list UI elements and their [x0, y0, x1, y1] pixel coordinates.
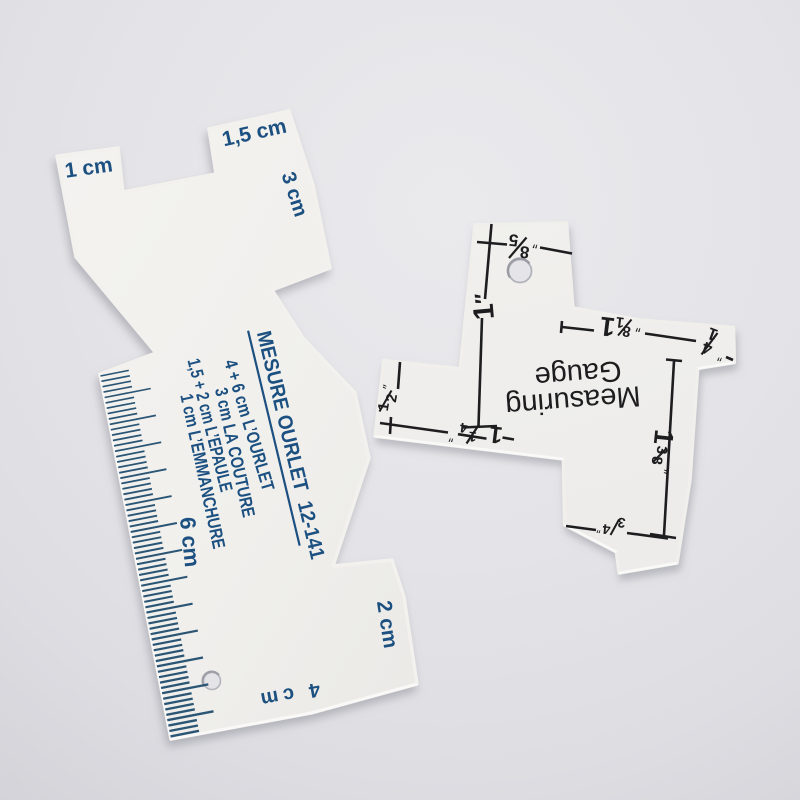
svg-text:1: 1 — [648, 428, 679, 446]
svg-text:6 cm: 6 cm — [175, 516, 205, 568]
svg-text:Gauge: Gauge — [533, 354, 622, 393]
svg-text:8: 8 — [648, 455, 666, 465]
